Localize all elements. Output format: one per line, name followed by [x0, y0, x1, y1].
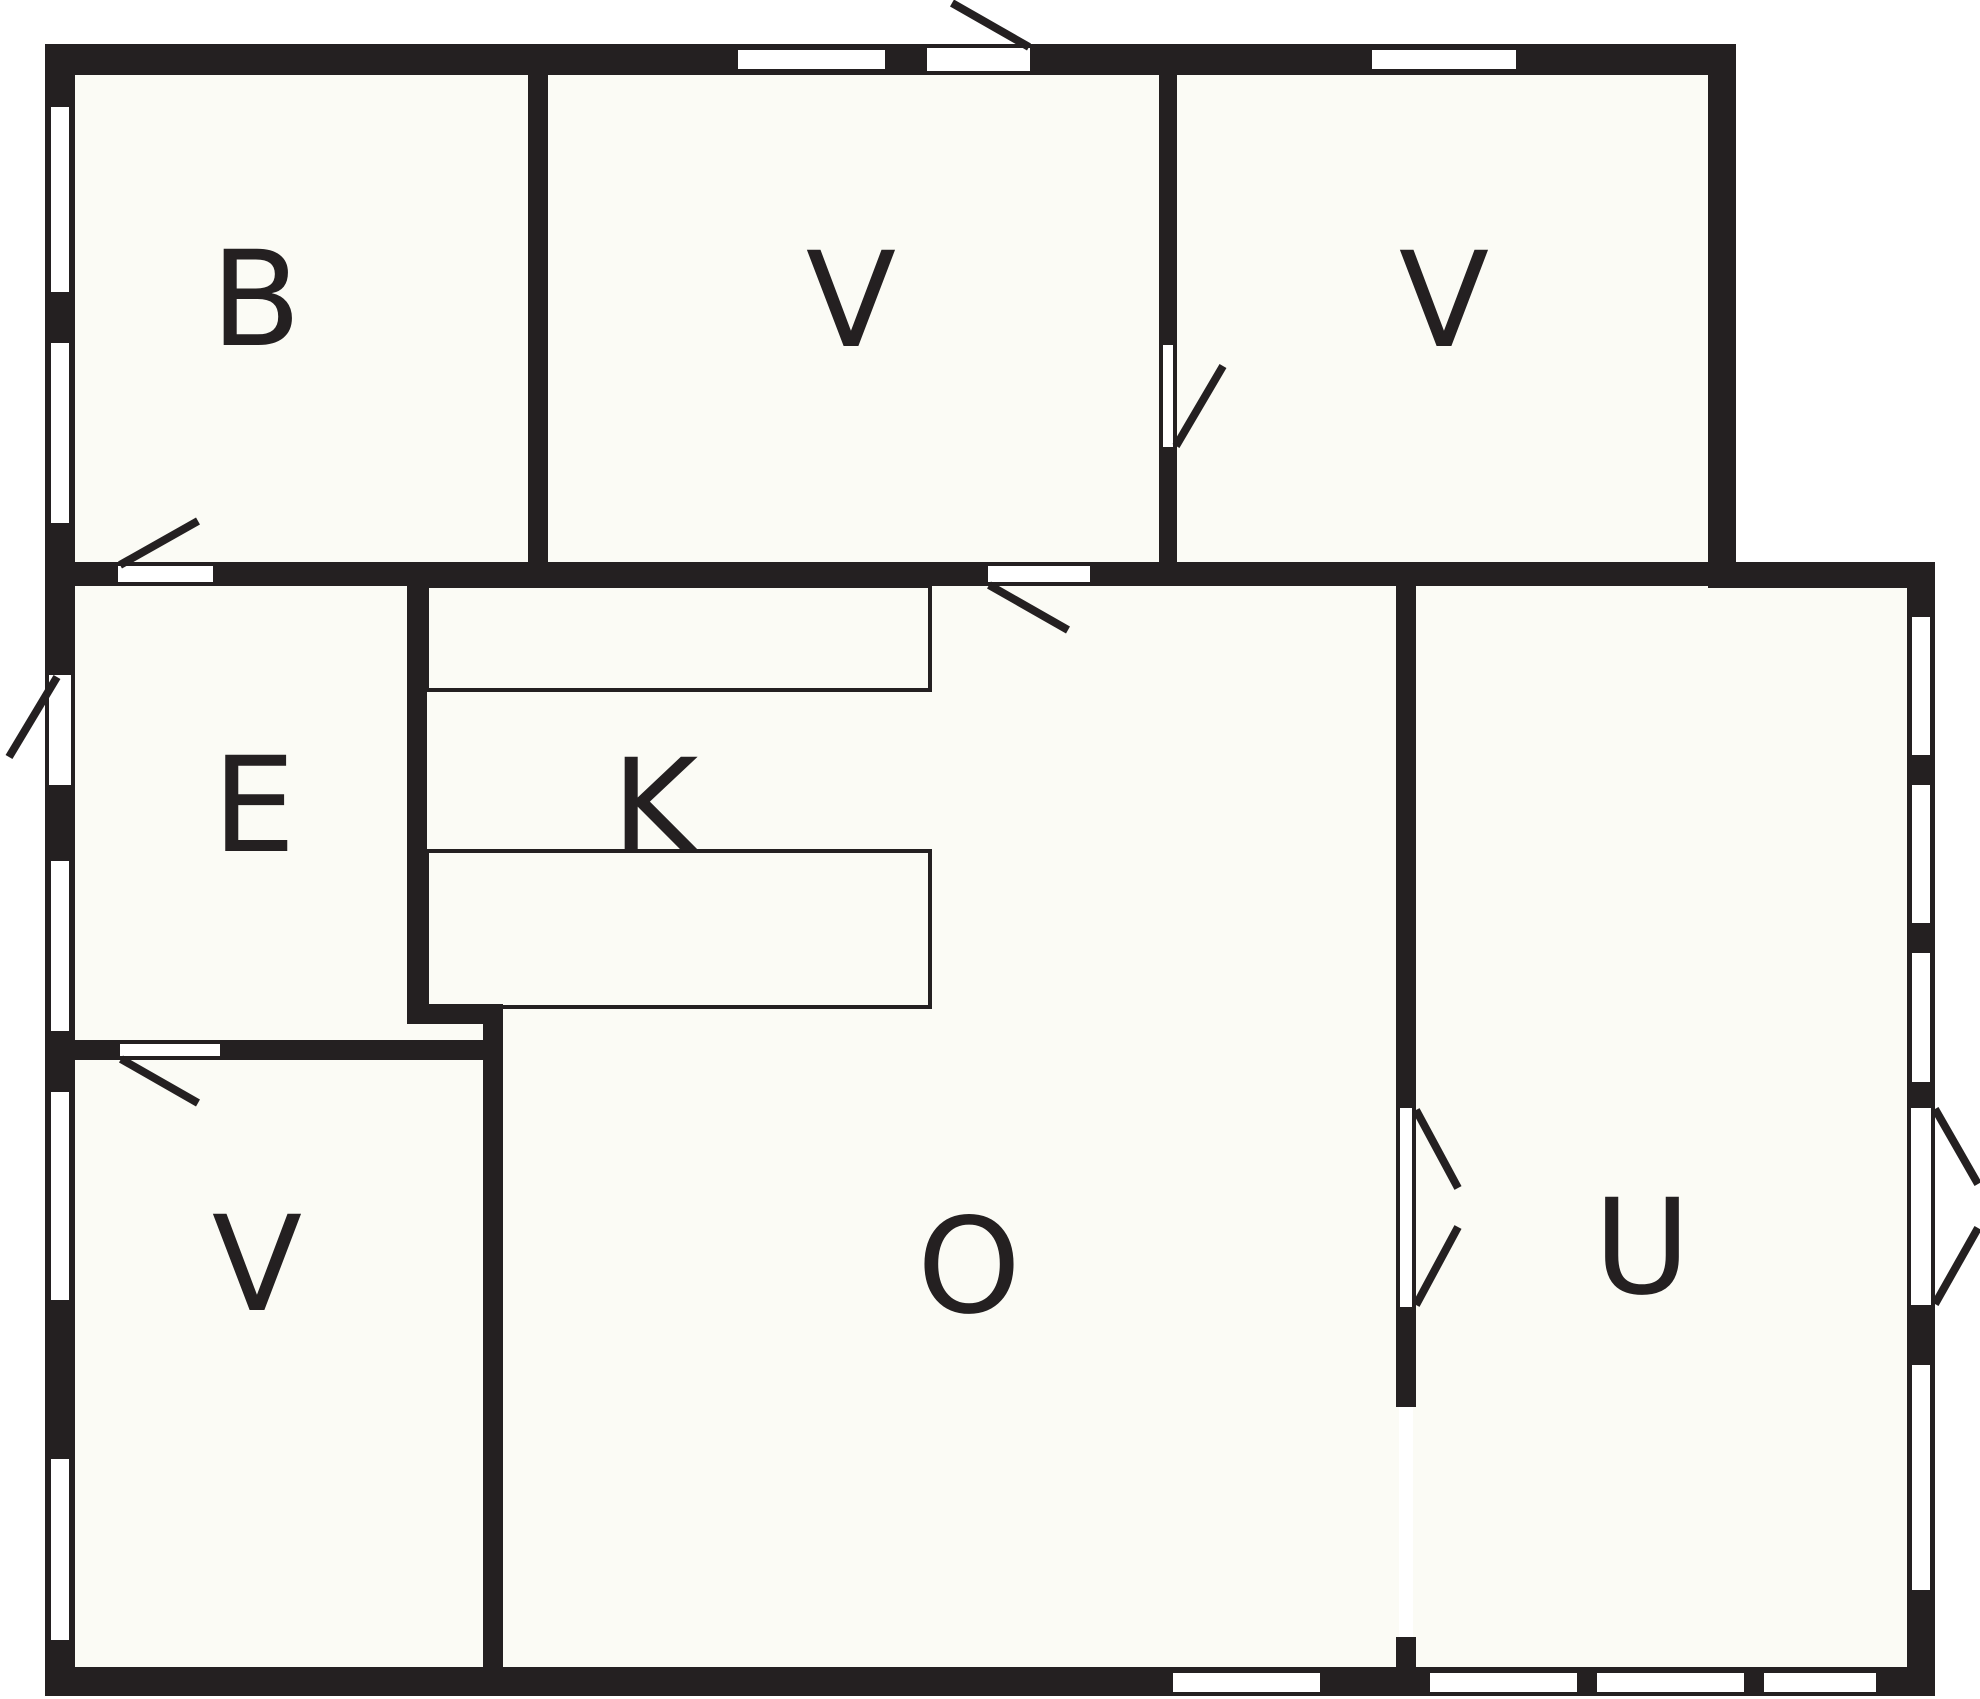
jamb — [71, 675, 75, 785]
o-u-wall-mid — [1396, 1307, 1416, 1407]
mid-band-wall-3 — [1090, 562, 1708, 586]
floor-plan-page: BVVEKVOU — [0, 0, 1980, 1699]
e-k-wall — [407, 586, 427, 1024]
room-label-room-top-middle: V — [806, 224, 896, 378]
e-v-wall-right — [220, 1040, 503, 1060]
o-u-wall-bottom — [1396, 1637, 1416, 1667]
right-wall-upper — [1708, 44, 1736, 588]
window-v-low-2 — [51, 1459, 69, 1640]
b-v-divider — [528, 75, 548, 562]
window-b-1 — [51, 107, 69, 292]
v-v-divider-stub — [1159, 447, 1177, 562]
u-top-wall — [1708, 562, 1935, 588]
room-label-room-top-right: V — [1399, 224, 1489, 378]
jamb — [927, 44, 1030, 48]
floor-plan-drawing: BVVEKVOU — [0, 0, 1980, 1699]
window-top-vright — [1372, 50, 1516, 69]
window-v-low-1 — [51, 1092, 69, 1300]
jamb — [120, 1056, 220, 1060]
floor-u-block — [1416, 588, 1907, 1667]
v-o-wall — [483, 1004, 503, 1667]
jamb — [988, 562, 1090, 566]
room-label-outbuilding-room: U — [1594, 1171, 1691, 1325]
window-u-right-4 — [1912, 1365, 1930, 1590]
room-label-room-bottom-left: V — [212, 1188, 302, 1342]
window-bottom-o — [1173, 1673, 1320, 1692]
kitchen-counter-upper — [427, 586, 930, 690]
jamb — [1931, 1108, 1935, 1305]
window-bottom-u2 — [1597, 1673, 1744, 1692]
window-top-vmid — [738, 50, 885, 69]
jamb — [1159, 345, 1163, 447]
room-label-bedroom-top-left: B — [211, 223, 302, 377]
jamb — [927, 71, 1030, 75]
room-label-entrance-hall: E — [212, 729, 295, 883]
jamb — [1412, 1108, 1416, 1307]
jamb — [120, 1040, 220, 1044]
window-e — [51, 861, 69, 1031]
window-u-right-1 — [1912, 617, 1930, 755]
o-u-glass-panel — [1399, 1407, 1413, 1637]
jamb — [118, 582, 213, 586]
jamb — [1173, 345, 1177, 447]
window-u-right-2 — [1912, 785, 1930, 923]
v-v-divider-top — [1159, 75, 1177, 345]
window-u-right-3 — [1912, 953, 1930, 1082]
room-label-kitchen: K — [612, 731, 702, 885]
room-label-living-room: O — [917, 1190, 1021, 1344]
u-terrace-door-opening — [1907, 1108, 1935, 1305]
window-b-2 — [51, 343, 69, 523]
window-bottom-u1 — [1430, 1673, 1577, 1692]
mid-band-wall-1 — [75, 562, 118, 586]
jamb — [988, 582, 1090, 586]
mid-band-wall-2 — [213, 562, 988, 586]
o-u-wall-top — [1396, 586, 1416, 1108]
jamb — [1907, 1108, 1911, 1305]
window-bottom-u3 — [1764, 1673, 1876, 1692]
e-v-wall-left — [75, 1040, 120, 1060]
jamb — [1396, 1108, 1400, 1307]
main-entrance-opening — [927, 44, 1030, 75]
